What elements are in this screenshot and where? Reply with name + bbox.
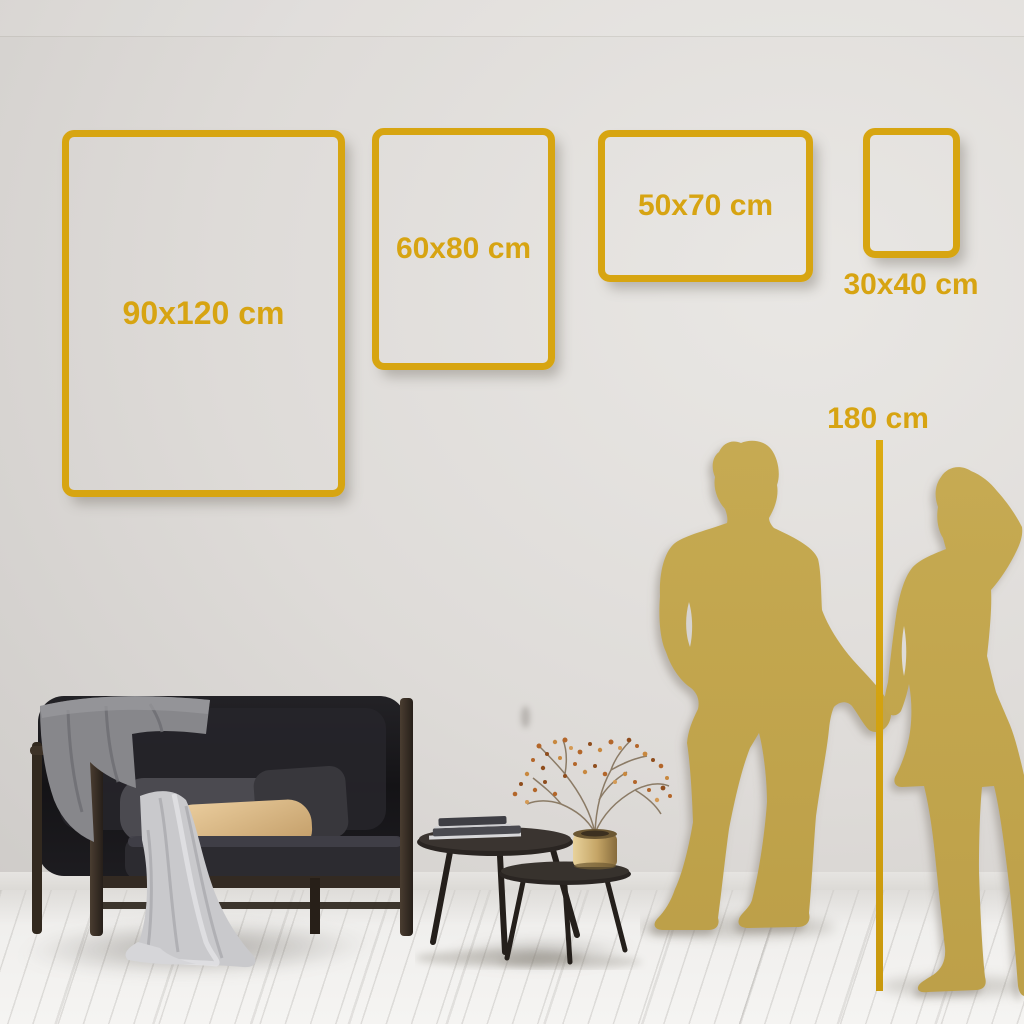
size-label-60x80: 60x80 cm	[396, 232, 531, 266]
woman-silhouette	[885, 467, 1024, 996]
man-silhouette	[655, 441, 891, 930]
ceiling-line	[0, 0, 1024, 37]
height-label: 180 cm	[818, 402, 938, 436]
small-table	[499, 862, 631, 963]
big-table	[417, 827, 577, 952]
size-frame-60x80: 60x80 cm	[372, 128, 555, 370]
size-label-30x40: 30x40 cm	[843, 268, 978, 301]
sofa	[10, 690, 440, 980]
brass-vase	[573, 829, 617, 870]
size-frame-30x40	[863, 128, 960, 258]
coffee-tables	[415, 730, 675, 970]
size-label-90x120: 90x120 cm	[123, 295, 285, 332]
couple-silhouette	[640, 430, 1024, 1024]
wall-mark	[521, 706, 530, 728]
size-frame-90x120: 90x120 cm	[62, 130, 345, 497]
size-label-50x70: 50x70 cm	[638, 189, 773, 223]
size-guide-scene: 90x120 cm 60x80 cm 50x70 cm 30x40 cm	[0, 0, 1024, 1024]
size-frame-50x70: 50x70 cm	[598, 130, 813, 282]
size-label-30x40-wrap: 30x40 cm	[831, 268, 991, 302]
height-ruler-line	[876, 440, 883, 991]
books	[428, 815, 521, 839]
